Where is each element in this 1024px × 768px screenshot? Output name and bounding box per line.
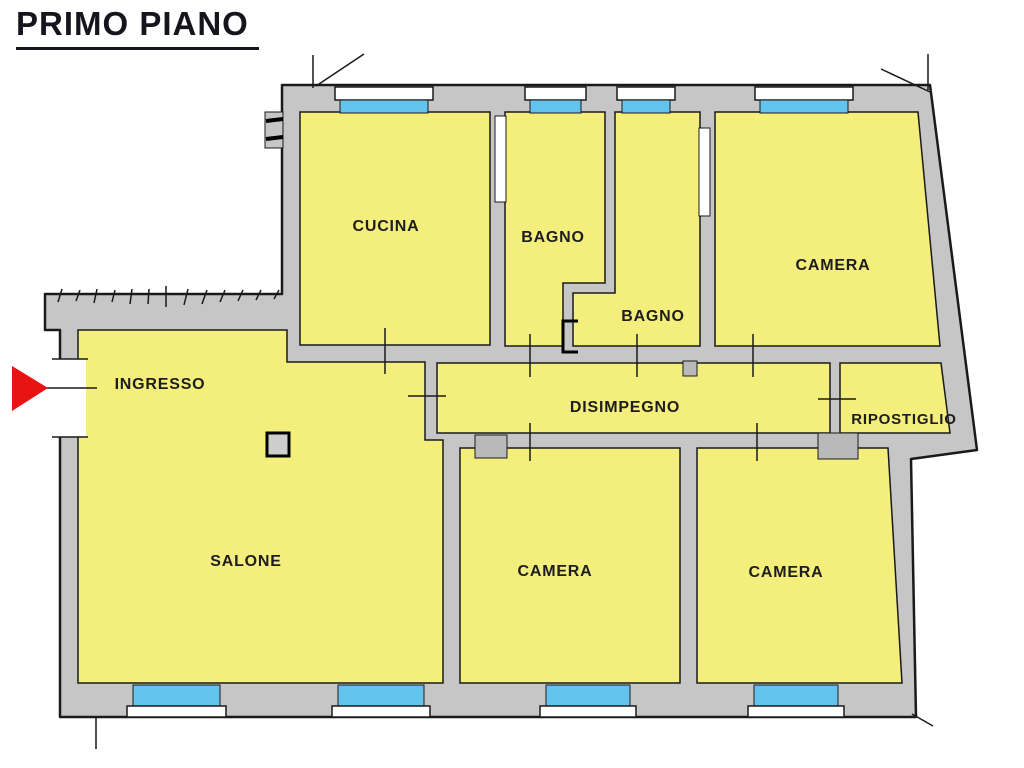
door-sill-block-right	[818, 433, 858, 459]
room-label-bagno-1: BAGNO	[521, 229, 585, 246]
door-camera-bagno	[699, 128, 710, 216]
room-label-camera-nord: CAMERA	[795, 257, 870, 274]
room-label-disimpegno: DISIMPEGNO	[570, 399, 680, 416]
room-label-camera-sud: CAMERA	[748, 564, 823, 581]
window-bottom-camera-sud	[748, 685, 844, 717]
window-top-camera-nord	[755, 87, 853, 113]
room-camera-nord-area	[715, 112, 940, 346]
window-bottom-camera-centrale	[540, 685, 636, 717]
entrance-arrow-icon	[12, 366, 48, 411]
room-label-ingresso: INGRESSO	[115, 376, 206, 393]
window-bottom-salone-2	[332, 685, 430, 717]
window-top-cucina	[335, 87, 433, 113]
floor-plan-page: PRIMO PIANO	[0, 0, 1024, 768]
room-disimpegno-area	[437, 363, 830, 433]
room-label-ripostiglio: RIPOSTIGLIO	[851, 411, 956, 428]
room-label-salone: SALONE	[210, 553, 281, 570]
room-label-bagno-2: BAGNO	[621, 308, 685, 325]
room-label-cucina: CUCINA	[352, 218, 419, 235]
page-title: PRIMO PIANO	[16, 6, 259, 50]
wall-stub	[683, 361, 697, 376]
entrance-door	[12, 359, 97, 437]
window-top-bagno-2	[617, 87, 675, 113]
door-cucina-bagno	[495, 116, 506, 202]
floor-plan-drawing: INGRESSO CUCINA BAGNO BAGNO CAMERA DISIM…	[0, 0, 1024, 768]
window-bottom-salone-1	[127, 685, 226, 717]
column-marker	[267, 433, 289, 456]
room-label-camera-centrale: CAMERA	[517, 563, 592, 580]
flue-marker	[265, 112, 283, 148]
window-top-bagno-1	[525, 87, 586, 113]
door-sill-block-left	[475, 435, 507, 458]
